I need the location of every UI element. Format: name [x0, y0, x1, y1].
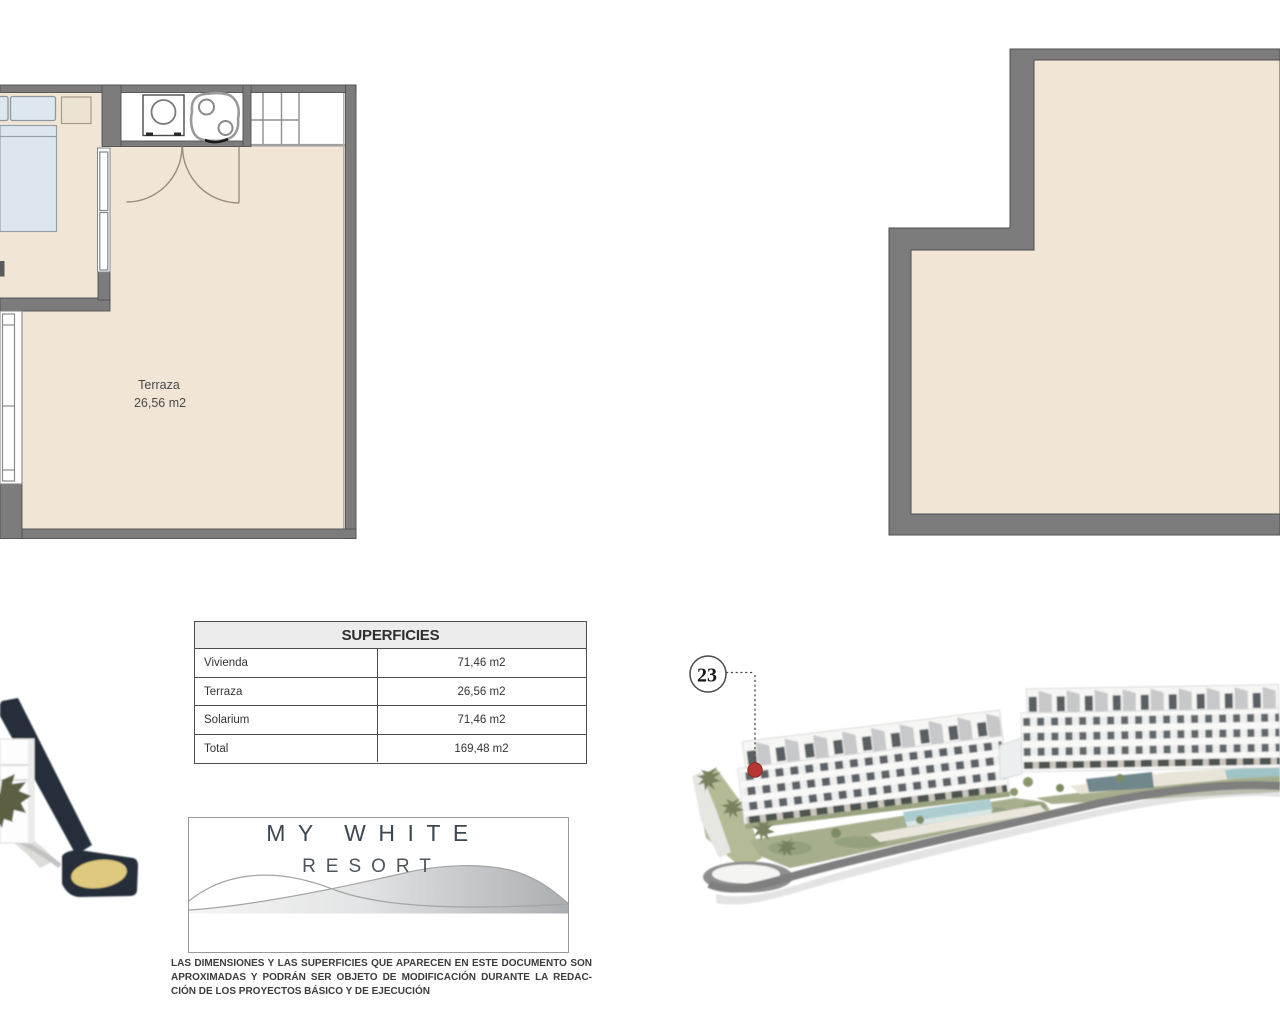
svg-text:23: 23 — [697, 665, 717, 687]
svg-text:Terraza: Terraza — [138, 378, 180, 392]
svg-text:26,56 m2: 26,56 m2 — [134, 396, 186, 410]
